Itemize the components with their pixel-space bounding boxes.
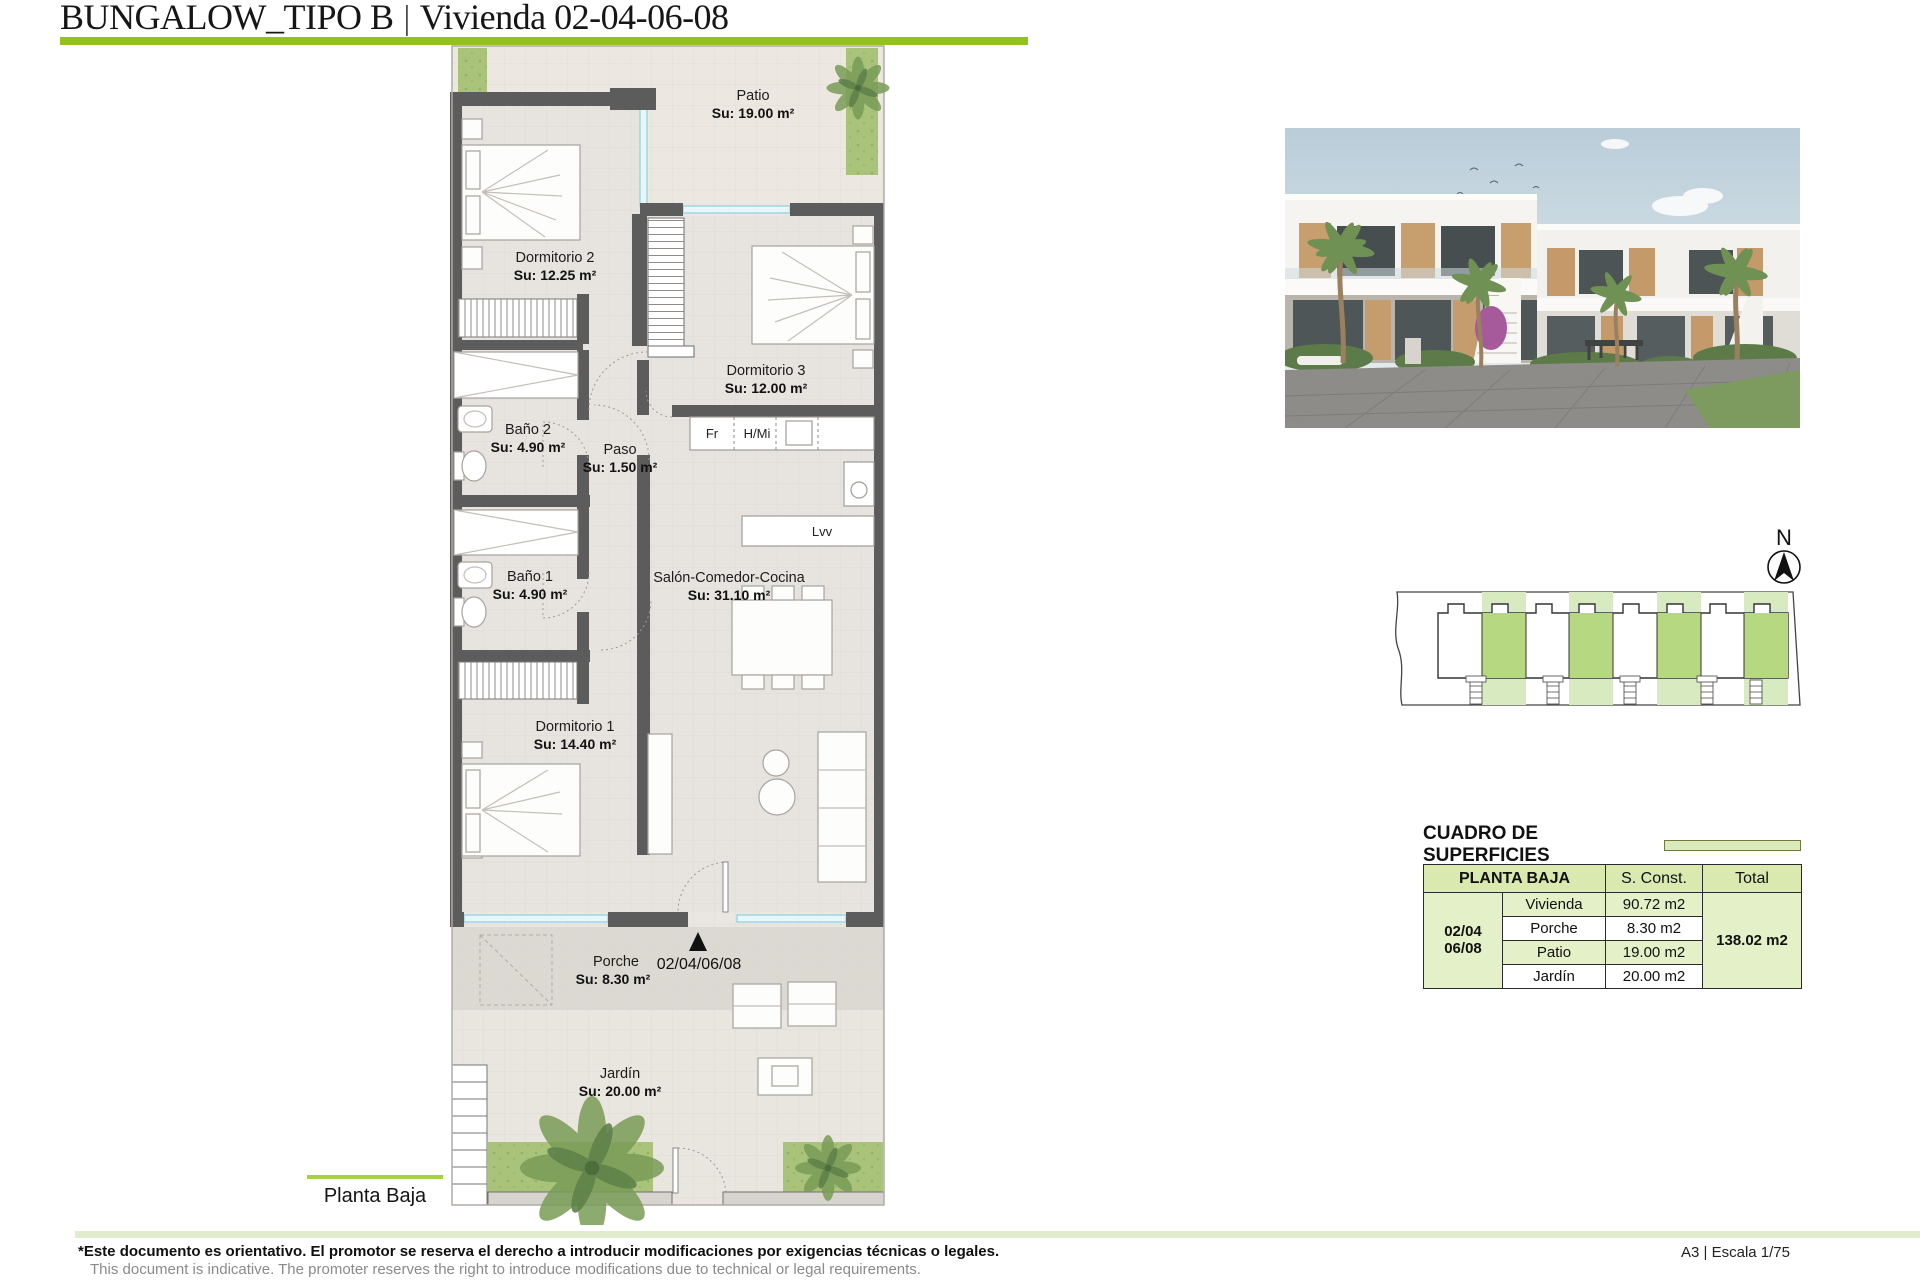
room-area-dormitorio-2: Su: 12.25 m² bbox=[514, 267, 597, 283]
room-area-bano-1: Su: 4.90 m² bbox=[493, 586, 568, 602]
row-value-jardin: 20.00 m2 bbox=[1606, 965, 1703, 989]
room-label-bano-2: Baño 2 bbox=[505, 422, 551, 438]
row-value-patio: 19.00 m2 bbox=[1606, 941, 1703, 965]
room-label-dormitorio-3: Dormitorio 3 bbox=[727, 363, 806, 379]
room-label-salon: Salón-Comedor-Cocina bbox=[653, 570, 805, 586]
entrance-units-label: 02/04/06/08 bbox=[657, 956, 742, 973]
unit-numbers-cell: 02/04 06/08 bbox=[1424, 893, 1503, 989]
col-header-sconst: S. Const. bbox=[1606, 865, 1703, 893]
row-value-porche: 8.30 m2 bbox=[1606, 917, 1703, 941]
render-photo bbox=[1285, 128, 1800, 428]
entrance-door-leaf bbox=[723, 862, 728, 912]
room-area-dormitorio-3: Su: 12.00 m² bbox=[725, 380, 808, 396]
surfaces-table: PLANTA BAJA S. Const. Total 02/04 06/08 … bbox=[1423, 864, 1802, 989]
room-area-salon: Su: 31.10 m² bbox=[688, 587, 771, 603]
row-label-jardin: Jardín bbox=[1503, 965, 1606, 989]
room-area-dormitorio-1: Su: 14.40 m² bbox=[534, 736, 617, 752]
page-title-main: BUNGALOW_TIPO B bbox=[60, 0, 393, 37]
planta-baja-underline bbox=[307, 1175, 443, 1179]
site-plan: N bbox=[1385, 515, 1810, 715]
room-label-dormitorio-1: Dormitorio 1 bbox=[536, 719, 615, 735]
kitchen-dishwasher-label: Lvv bbox=[812, 524, 833, 539]
exterior-stairs bbox=[452, 1065, 487, 1205]
floor-label: Planta Baja bbox=[292, 1185, 458, 1208]
stair-shaft-hatch bbox=[648, 218, 684, 346]
north-label: N bbox=[1776, 525, 1792, 550]
room-area-jardin: Su: 20.00 m² bbox=[579, 1083, 662, 1099]
surfaces-title-bar bbox=[1664, 840, 1801, 851]
total-value-cell: 138.02 m2 bbox=[1703, 893, 1802, 989]
room-label-paso: Paso bbox=[603, 442, 636, 458]
col-header-total: Total bbox=[1703, 865, 1802, 893]
row-label-porche: Porche bbox=[1503, 917, 1606, 941]
disclaimer-en: This document is indicative. The promote… bbox=[90, 1261, 921, 1278]
unit-line2: 06/08 bbox=[1428, 941, 1498, 958]
kitchen-fridge-label: Fr bbox=[706, 426, 719, 441]
unit-line1: 02/04 bbox=[1428, 924, 1498, 941]
room-area-bano-2: Su: 4.90 m² bbox=[491, 439, 566, 455]
room-label-dormitorio-2: Dormitorio 2 bbox=[516, 250, 595, 266]
floor-plan: Patio Su: 19.00 m² Dormitorio 2 Su: 12.2… bbox=[440, 40, 900, 1225]
row-label-patio: Patio bbox=[1503, 941, 1606, 965]
col-header-planta-baja: PLANTA BAJA bbox=[1424, 865, 1606, 893]
disclaimer-es: *Este documento es orientativo. El promo… bbox=[78, 1243, 999, 1260]
room-area-paso: Su: 1.50 m² bbox=[583, 459, 658, 475]
stair-landing bbox=[648, 346, 694, 357]
table-row: 02/04 06/08 Vivienda 90.72 m2 138.02 m2 bbox=[1424, 893, 1802, 917]
grass-patch-top-left bbox=[458, 48, 487, 92]
palm-garden-small bbox=[795, 1135, 861, 1201]
row-label-vivienda: Vivienda bbox=[1503, 893, 1606, 917]
room-label-patio: Patio bbox=[736, 88, 769, 104]
north-compass: N bbox=[1768, 525, 1800, 583]
surfaces-section: CUADRO DE SUPERFICIES PLANTA BAJA S. Con… bbox=[1423, 832, 1801, 989]
room-area-patio: Su: 19.00 m² bbox=[712, 105, 795, 121]
compass-needle-icon bbox=[1774, 552, 1794, 581]
room-area-porche: Su: 8.30 m² bbox=[576, 971, 651, 987]
site-diagram bbox=[1396, 592, 1800, 705]
surfaces-title: CUADRO DE SUPERFICIES bbox=[1423, 823, 1664, 867]
room-label-jardin: Jardín bbox=[600, 1066, 640, 1082]
title-separator: | bbox=[393, 0, 419, 37]
page-title: BUNGALOW_TIPO B|Vivienda 02-04-06-08 bbox=[60, 0, 729, 38]
room-label-porche: Porche bbox=[593, 954, 639, 970]
document-page: BUNGALOW_TIPO B|Vivienda 02-04-06-08 bbox=[0, 0, 1920, 1280]
kitchen-oven-label: H/Mi bbox=[744, 426, 771, 441]
garden-gate-leaf bbox=[673, 1148, 678, 1193]
page-title-sub: Vivienda 02-04-06-08 bbox=[420, 0, 729, 37]
sheet-info: A3 | Escala 1/75 bbox=[1681, 1244, 1790, 1261]
footer-accent-band bbox=[75, 1231, 1920, 1238]
room-label-bano-1: Baño 1 bbox=[507, 569, 553, 585]
palm-patio bbox=[827, 57, 890, 120]
row-value-vivienda: 90.72 m2 bbox=[1606, 893, 1703, 917]
